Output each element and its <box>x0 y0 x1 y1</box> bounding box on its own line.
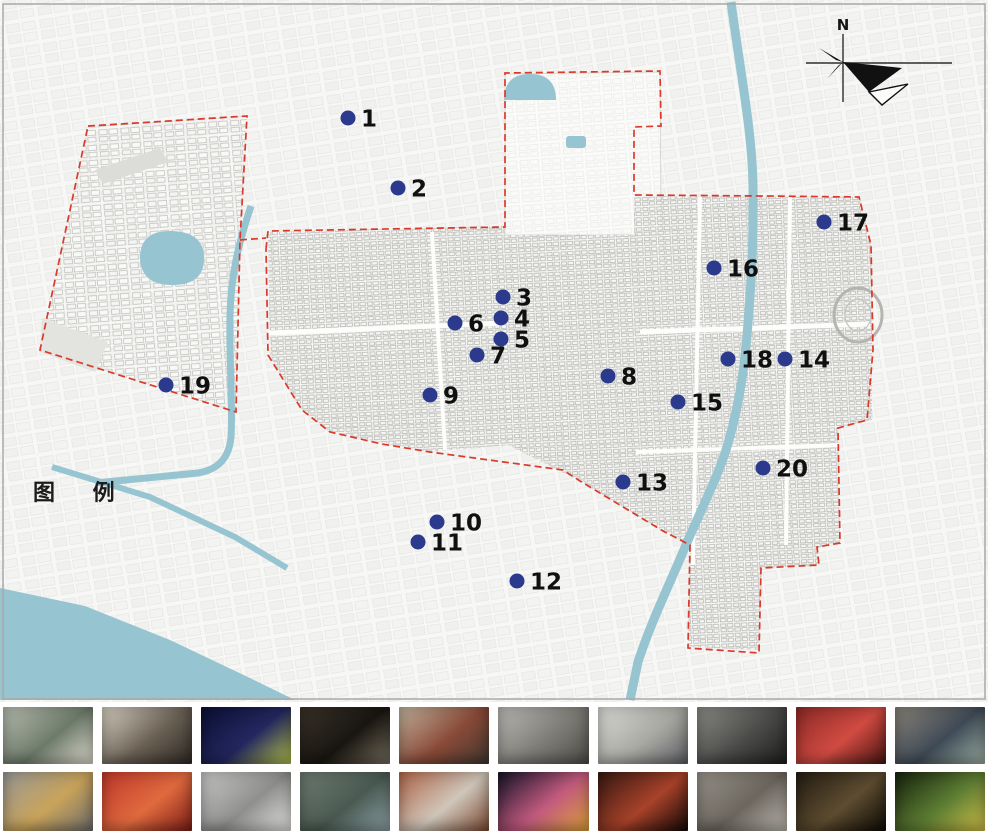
gallery-photo-r1p1[interactable] <box>3 707 93 764</box>
map-canvas: N 图 例 1234567891011121314151617181920 <box>0 0 988 702</box>
point-number-label: 6 <box>468 312 484 338</box>
point-dot[interactable] <box>721 352 736 367</box>
gallery-photo-r2p1[interactable] <box>3 772 93 831</box>
gallery-photo-r1p4[interactable] <box>300 707 390 764</box>
gallery-photo-r2p6[interactable] <box>498 772 588 831</box>
photo-gallery-strip <box>0 702 988 831</box>
gallery-photo-r1p9[interactable] <box>796 707 886 764</box>
gallery-photo-r2p8[interactable] <box>697 772 787 831</box>
point-number-label: 5 <box>514 328 530 354</box>
gallery-photo-r2p10[interactable] <box>895 772 985 831</box>
point-number-label: 2 <box>411 177 427 203</box>
gallery-photo-r2p4[interactable] <box>300 772 390 831</box>
gallery-row-1 <box>3 707 985 764</box>
historic-district-map: N 图 例 1234567891011121314151617181920 <box>0 0 988 702</box>
gallery-photo-r1p8[interactable] <box>697 707 787 764</box>
gallery-photo-r2p5[interactable] <box>399 772 489 831</box>
gallery-photo-r2p2[interactable] <box>102 772 192 831</box>
point-dot[interactable] <box>601 369 616 384</box>
compass-north-label: N <box>837 16 850 34</box>
gallery-photo-r2p9[interactable] <box>796 772 886 831</box>
point-number-label: 11 <box>431 531 463 557</box>
point-number-label: 7 <box>490 344 506 370</box>
point-dot[interactable] <box>430 515 445 530</box>
point-number-label: 18 <box>741 348 773 374</box>
point-dot[interactable] <box>423 388 438 403</box>
gallery-row-2 <box>3 772 985 831</box>
point-dot[interactable] <box>707 261 722 276</box>
point-dot[interactable] <box>671 395 686 410</box>
point-dot[interactable] <box>494 311 509 326</box>
point-dot[interactable] <box>616 475 631 490</box>
point-number-label: 8 <box>621 365 637 391</box>
gallery-photo-r1p5[interactable] <box>399 707 489 764</box>
point-dot[interactable] <box>341 111 356 126</box>
west-pond <box>140 231 204 285</box>
point-number-label: 17 <box>837 211 869 237</box>
gallery-photo-r1p10[interactable] <box>895 707 985 764</box>
point-dot[interactable] <box>448 316 463 331</box>
point-dot[interactable] <box>496 290 511 305</box>
point-number-label: 19 <box>179 374 211 400</box>
point-number-label: 13 <box>636 471 668 497</box>
point-dot[interactable] <box>778 352 793 367</box>
point-dot[interactable] <box>470 348 485 363</box>
point-number-label: 20 <box>776 457 808 483</box>
point-dot[interactable] <box>510 574 525 589</box>
legend-title: 图 例 <box>33 481 130 506</box>
gallery-photo-r1p3[interactable] <box>201 707 291 764</box>
point-dot[interactable] <box>159 378 174 393</box>
small-pond <box>566 136 586 148</box>
gallery-photo-r1p7[interactable] <box>598 707 688 764</box>
point-dot[interactable] <box>817 215 832 230</box>
point-dot[interactable] <box>391 181 406 196</box>
gallery-photo-r1p6[interactable] <box>498 707 588 764</box>
point-number-label: 16 <box>727 257 759 283</box>
gallery-photo-r2p7[interactable] <box>598 772 688 831</box>
point-dot[interactable] <box>411 535 426 550</box>
point-number-label: 14 <box>798 348 830 374</box>
point-number-label: 12 <box>530 570 562 596</box>
point-number-label: 15 <box>691 391 723 417</box>
point-number-label: 9 <box>443 384 459 410</box>
gallery-photo-r2p3[interactable] <box>201 772 291 831</box>
point-number-label: 1 <box>361 107 377 133</box>
point-dot[interactable] <box>756 461 771 476</box>
gallery-photo-r1p2[interactable] <box>102 707 192 764</box>
